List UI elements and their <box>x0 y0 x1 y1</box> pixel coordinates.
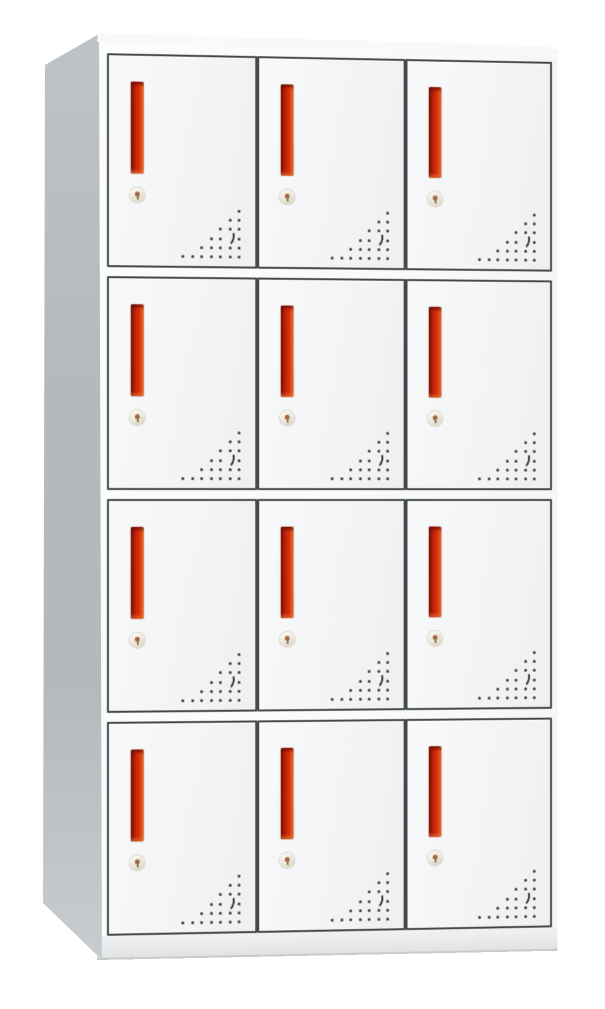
vent-dot <box>228 884 231 887</box>
vent-holes <box>476 870 541 920</box>
vent-dot <box>368 918 371 921</box>
vent-dot <box>238 653 241 656</box>
vent-dot <box>340 918 343 921</box>
vent-dot <box>505 915 508 918</box>
vent-dot <box>368 909 371 912</box>
cabinet-front-face <box>97 40 558 960</box>
vent-dot <box>238 875 241 878</box>
vent-dot <box>478 916 481 919</box>
vent-dot <box>219 246 222 249</box>
vent-dot <box>358 918 361 921</box>
vent-dot <box>228 255 231 258</box>
vent-dot <box>191 921 194 924</box>
vent-dot <box>505 459 508 462</box>
vent-dot <box>496 258 499 261</box>
vent-dot <box>219 912 222 915</box>
vent-dot <box>200 468 203 471</box>
locker-door-9[interactable] <box>406 499 552 710</box>
vent-holes <box>329 872 395 923</box>
vent-dot <box>524 441 527 444</box>
locker-cabinet-photo <box>0 0 605 1009</box>
vent-dot <box>210 246 213 249</box>
vent-dot <box>238 459 241 462</box>
vent-dot <box>505 906 508 909</box>
vent-dot <box>386 697 389 700</box>
vent-dot <box>386 257 389 260</box>
vent-dot <box>377 881 380 884</box>
vent-dot <box>368 891 371 894</box>
vent-dot <box>210 477 213 480</box>
locker-door-7[interactable] <box>107 499 257 713</box>
vent-dot <box>210 699 213 702</box>
vent-dot <box>210 690 213 693</box>
vent-dot <box>238 431 241 434</box>
vent-dot <box>377 661 380 664</box>
vent-dot <box>219 450 222 453</box>
vent-dot <box>200 690 203 693</box>
vent-dot <box>533 888 536 891</box>
vent-dot <box>515 468 518 471</box>
vent-dot <box>358 689 361 692</box>
vent-dot <box>533 459 536 462</box>
vent-dot <box>200 699 203 702</box>
vent-dot <box>368 689 371 692</box>
vent-dot <box>524 222 527 225</box>
lock-keyhole[interactable] <box>280 190 295 205</box>
vent-dot <box>349 918 352 921</box>
lock-keyhole[interactable] <box>280 632 295 647</box>
vent-dot <box>238 228 241 231</box>
vent-dot <box>386 230 389 233</box>
vent-dot <box>386 441 389 444</box>
vent-dot <box>533 468 536 471</box>
vent-dot <box>368 477 371 480</box>
vent-dot <box>505 240 508 243</box>
vent-dot <box>238 468 241 471</box>
vent-dot <box>515 906 518 909</box>
vent-dot <box>368 900 371 903</box>
vent-dot <box>524 660 527 663</box>
vent-dot <box>478 697 481 700</box>
vent-dot <box>533 870 536 873</box>
vent-dot <box>515 888 518 891</box>
vent-dot <box>191 477 194 480</box>
vent-dot <box>340 698 343 701</box>
vent-dot <box>377 257 380 260</box>
vent-dot <box>505 687 508 690</box>
vent-dot <box>219 459 222 462</box>
vent-dot <box>358 257 361 260</box>
vent-dot <box>386 909 389 912</box>
vent-dot <box>358 239 361 242</box>
vent-dot <box>210 468 213 471</box>
vent-dot <box>515 231 518 234</box>
vent-crescent-hole <box>371 891 385 909</box>
vent-dot <box>368 698 371 701</box>
vent-holes <box>476 213 541 263</box>
locker-door-12[interactable] <box>406 718 552 931</box>
vent-dot <box>487 916 490 919</box>
door-handle[interactable] <box>429 746 442 837</box>
vent-dot <box>349 689 352 692</box>
vent-dot <box>386 459 389 462</box>
vent-dot <box>368 257 371 260</box>
vent-dot <box>524 687 527 690</box>
vent-dot <box>331 919 334 922</box>
vent-dot <box>505 678 508 681</box>
vent-dot <box>386 477 389 480</box>
vent-dot <box>533 660 536 663</box>
vent-dot <box>200 255 203 258</box>
vent-holes <box>329 432 395 482</box>
door-handle[interactable] <box>281 84 294 175</box>
vent-dot <box>515 450 518 453</box>
vent-dot <box>377 918 380 921</box>
vent-dot <box>496 477 499 480</box>
vent-dot <box>533 879 536 882</box>
vent-dot <box>238 911 241 914</box>
lock-keyhole[interactable] <box>428 192 443 207</box>
vent-dot <box>533 906 536 909</box>
vent-dot <box>377 468 380 471</box>
vent-dot <box>181 921 184 924</box>
lock-keyhole[interactable] <box>428 631 443 646</box>
vent-dot <box>219 477 222 480</box>
vent-dot <box>487 697 490 700</box>
vent-dot <box>228 699 231 702</box>
vent-dot <box>533 678 536 681</box>
vent-dot <box>228 477 231 480</box>
vent-dot <box>238 246 241 249</box>
locker-door-4[interactable] <box>107 276 257 490</box>
vent-dot <box>368 459 371 462</box>
vent-dot <box>496 249 499 252</box>
vent-dot <box>515 258 518 261</box>
vent-dot <box>515 669 518 672</box>
vent-dot <box>228 246 231 249</box>
door-handle[interactable] <box>131 304 144 396</box>
vent-dot <box>533 477 536 480</box>
vent-crescent-hole <box>518 670 532 688</box>
vent-dot <box>515 249 518 252</box>
vent-dot <box>228 690 231 693</box>
vent-dot <box>487 477 490 480</box>
vent-dot <box>386 881 389 884</box>
vent-dot <box>358 468 361 471</box>
vent-dot <box>533 915 536 918</box>
vent-dot <box>505 477 508 480</box>
vent-dot <box>200 921 203 924</box>
vent-dot <box>368 468 371 471</box>
locker-door-8[interactable] <box>257 499 405 711</box>
lock-keyhole[interactable] <box>280 853 295 868</box>
vent-dot <box>228 662 231 665</box>
locker-door-1[interactable] <box>107 53 257 268</box>
vent-holes <box>329 652 395 702</box>
vent-dot <box>238 256 241 259</box>
vent-crescent-hole <box>518 889 532 907</box>
vent-dot <box>496 907 499 910</box>
vent-dot <box>386 899 389 902</box>
vent-dot <box>377 698 380 701</box>
lock-keyhole[interactable] <box>130 187 145 202</box>
vent-dot <box>228 911 231 914</box>
vent-crescent-hole <box>371 671 385 689</box>
vent-dot <box>219 681 222 684</box>
vent-dot <box>505 249 508 252</box>
vent-dot <box>210 903 213 906</box>
door-grid <box>107 53 552 936</box>
vent-dot <box>331 257 334 260</box>
vent-dot <box>349 698 352 701</box>
vent-dot <box>200 246 203 249</box>
door-handle[interactable] <box>281 527 294 618</box>
vent-dot <box>386 221 389 224</box>
vent-dot <box>386 661 389 664</box>
vent-dot <box>181 255 184 258</box>
vent-dot <box>238 219 241 222</box>
vent-dot <box>524 696 527 699</box>
vent-dot <box>210 921 213 924</box>
vent-dot <box>200 912 203 915</box>
vent-dot <box>496 916 499 919</box>
door-handle[interactable] <box>281 748 294 839</box>
vent-dot <box>238 210 241 213</box>
vent-dot <box>515 459 518 462</box>
locker-door-3[interactable] <box>406 59 552 272</box>
vent-dot <box>386 670 389 673</box>
vent-dot <box>533 696 536 699</box>
vent-dot <box>386 248 389 251</box>
vent-dot <box>533 214 536 217</box>
vent-dot <box>219 671 222 674</box>
vent-dot <box>515 477 518 480</box>
vent-dot <box>368 239 371 242</box>
vent-dot <box>331 477 334 480</box>
vent-dot <box>210 237 213 240</box>
lock-keyhole[interactable] <box>130 855 145 870</box>
vent-dot <box>349 468 352 471</box>
vent-crescent-hole <box>371 451 385 469</box>
vent-dot <box>386 679 389 682</box>
vent-dot <box>191 699 194 702</box>
vent-dot <box>515 678 518 681</box>
vent-dot <box>358 248 361 251</box>
vent-dot <box>478 477 481 480</box>
vent-dot <box>238 680 241 683</box>
vent-dot <box>349 477 352 480</box>
vent-dot <box>358 459 361 462</box>
vent-dot <box>238 441 241 444</box>
vent-dot <box>533 241 536 244</box>
door-handle[interactable] <box>281 306 294 397</box>
vent-dot <box>377 688 380 691</box>
vent-dot <box>238 690 241 693</box>
vent-dot <box>210 681 213 684</box>
vent-dot <box>533 441 536 444</box>
vent-dot <box>377 909 380 912</box>
vent-dot <box>358 909 361 912</box>
vent-dot <box>524 468 527 471</box>
lock-keyhole[interactable] <box>280 411 295 426</box>
vent-dot <box>524 906 527 909</box>
vent-dot <box>533 651 536 654</box>
vent-crescent-hole <box>222 894 236 912</box>
vent-dot <box>524 879 527 882</box>
lock-keyhole[interactable] <box>130 633 145 648</box>
locker-door-11[interactable] <box>257 719 405 933</box>
vent-dot <box>358 698 361 701</box>
vent-dot <box>368 248 371 251</box>
vent-dot <box>386 468 389 471</box>
locker-door-2[interactable] <box>257 56 405 270</box>
vent-dot <box>505 468 508 471</box>
vent-dot <box>238 237 241 240</box>
vent-dot <box>219 893 222 896</box>
vent-dot <box>210 912 213 915</box>
vent-dot <box>377 477 380 480</box>
vent-dot <box>181 699 184 702</box>
vent-dot <box>210 459 213 462</box>
vent-crescent-hole <box>222 228 236 246</box>
door-handle[interactable] <box>131 82 144 174</box>
vent-holes <box>179 431 246 481</box>
vent-dot <box>515 897 518 900</box>
vent-dot <box>349 909 352 912</box>
vent-dot <box>533 223 536 226</box>
vent-dot <box>349 248 352 251</box>
vent-dot <box>386 239 389 242</box>
vent-holes <box>179 875 246 926</box>
vent-dot <box>219 902 222 905</box>
vent-dot <box>496 468 499 471</box>
vent-dot <box>238 477 241 480</box>
vent-dot <box>533 669 536 672</box>
vent-dot <box>505 258 508 261</box>
vent-dot <box>524 259 527 262</box>
vent-dot <box>358 900 361 903</box>
vent-dot <box>200 477 203 480</box>
vent-dot <box>238 699 241 702</box>
vent-dot <box>238 920 241 923</box>
vent-dot <box>219 228 222 231</box>
vent-dot <box>238 671 241 674</box>
vent-dot <box>191 255 194 258</box>
vent-dot <box>515 915 518 918</box>
vent-dot <box>219 690 222 693</box>
door-handle[interactable] <box>429 307 442 398</box>
vent-dot <box>533 232 536 235</box>
vent-dot <box>496 696 499 699</box>
vent-dot <box>219 468 222 471</box>
vent-dot <box>219 237 222 240</box>
vent-crescent-hole <box>222 450 236 468</box>
vent-crescent-hole <box>371 230 385 248</box>
locker-door-5[interactable] <box>257 278 405 491</box>
vent-dot <box>377 221 380 224</box>
vent-dot <box>386 918 389 921</box>
vent-dot <box>487 258 490 261</box>
vent-dot <box>386 432 389 435</box>
door-handle[interactable] <box>131 749 144 841</box>
locker-door-10[interactable] <box>107 720 257 935</box>
vent-dot <box>377 441 380 444</box>
vent-crescent-hole <box>222 672 236 690</box>
vent-dot <box>228 219 231 222</box>
vent-dot <box>219 699 222 702</box>
locker-door-6[interactable] <box>406 279 552 490</box>
lock-keyhole[interactable] <box>428 851 443 866</box>
vent-holes <box>476 432 541 481</box>
vent-holes <box>329 211 395 261</box>
vent-holes <box>179 653 246 703</box>
vent-dot <box>505 696 508 699</box>
vent-dot <box>349 257 352 260</box>
vent-dot <box>533 450 536 453</box>
vent-dot <box>386 688 389 691</box>
vent-dot <box>386 450 389 453</box>
vent-crescent-hole <box>518 451 532 469</box>
vent-dot <box>238 893 241 896</box>
vent-dot <box>228 468 231 471</box>
door-handle[interactable] <box>429 87 442 178</box>
vent-dot <box>368 679 371 682</box>
vent-dot <box>358 679 361 682</box>
vent-dot <box>533 432 536 435</box>
vent-dot <box>533 259 536 262</box>
vent-dot <box>524 915 527 918</box>
vent-dot <box>515 240 518 243</box>
lock-keyhole[interactable] <box>130 410 145 425</box>
vent-dot <box>210 255 213 258</box>
vent-dot <box>238 662 241 665</box>
vent-dot <box>331 698 334 701</box>
vent-dot <box>368 230 371 233</box>
vent-dot <box>219 255 222 258</box>
vent-dot <box>496 687 499 690</box>
vent-dot <box>219 921 222 924</box>
vent-dot <box>228 441 231 444</box>
vent-dot <box>238 450 241 453</box>
vent-dot <box>515 687 518 690</box>
vent-dot <box>368 450 371 453</box>
vent-dot <box>533 250 536 253</box>
vent-dot <box>386 652 389 655</box>
door-handle[interactable] <box>429 527 442 618</box>
vent-dot <box>524 477 527 480</box>
vent-holes <box>476 651 541 701</box>
vent-dot <box>181 477 184 480</box>
vent-dot <box>533 687 536 690</box>
vent-dot <box>505 897 508 900</box>
lock-keyhole[interactable] <box>428 411 443 426</box>
vent-dot <box>238 902 241 905</box>
vent-dot <box>515 696 518 699</box>
vent-dot <box>524 250 527 253</box>
vent-dot <box>340 257 343 260</box>
vent-dot <box>533 897 536 900</box>
vent-dot <box>377 248 380 251</box>
vent-dot <box>386 872 389 875</box>
vent-dot <box>368 670 371 673</box>
vent-dot <box>478 258 481 261</box>
vent-holes <box>179 209 246 260</box>
vent-dot <box>340 477 343 480</box>
vent-crescent-hole <box>518 232 532 250</box>
vent-dot <box>228 921 231 924</box>
vent-dot <box>358 477 361 480</box>
door-handle[interactable] <box>131 527 144 619</box>
